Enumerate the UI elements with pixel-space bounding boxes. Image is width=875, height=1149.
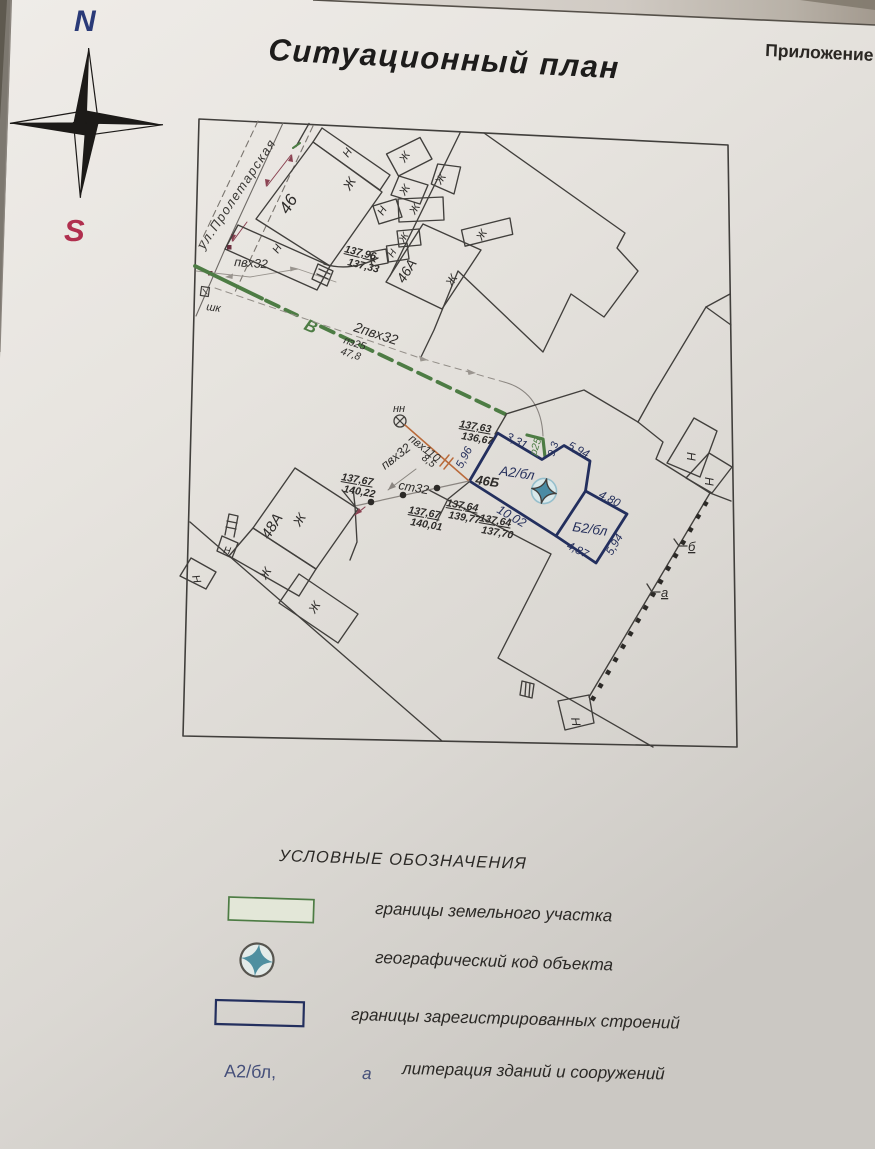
svg-text:S: S (64, 213, 85, 248)
svg-text:N: N (74, 5, 97, 38)
svg-text:Н: Н (684, 452, 698, 461)
svg-text:шк: шк (206, 301, 223, 315)
svg-text:а: а (362, 1064, 372, 1083)
svg-text:б: б (688, 539, 696, 554)
svg-text:нн: нн (393, 403, 405, 415)
svg-text:пвх32: пвх32 (234, 255, 268, 271)
svg-text:Н: Н (702, 477, 716, 486)
svg-text:А2/бл,: А2/бл, (224, 1061, 276, 1082)
svg-text:а: а (661, 585, 668, 600)
